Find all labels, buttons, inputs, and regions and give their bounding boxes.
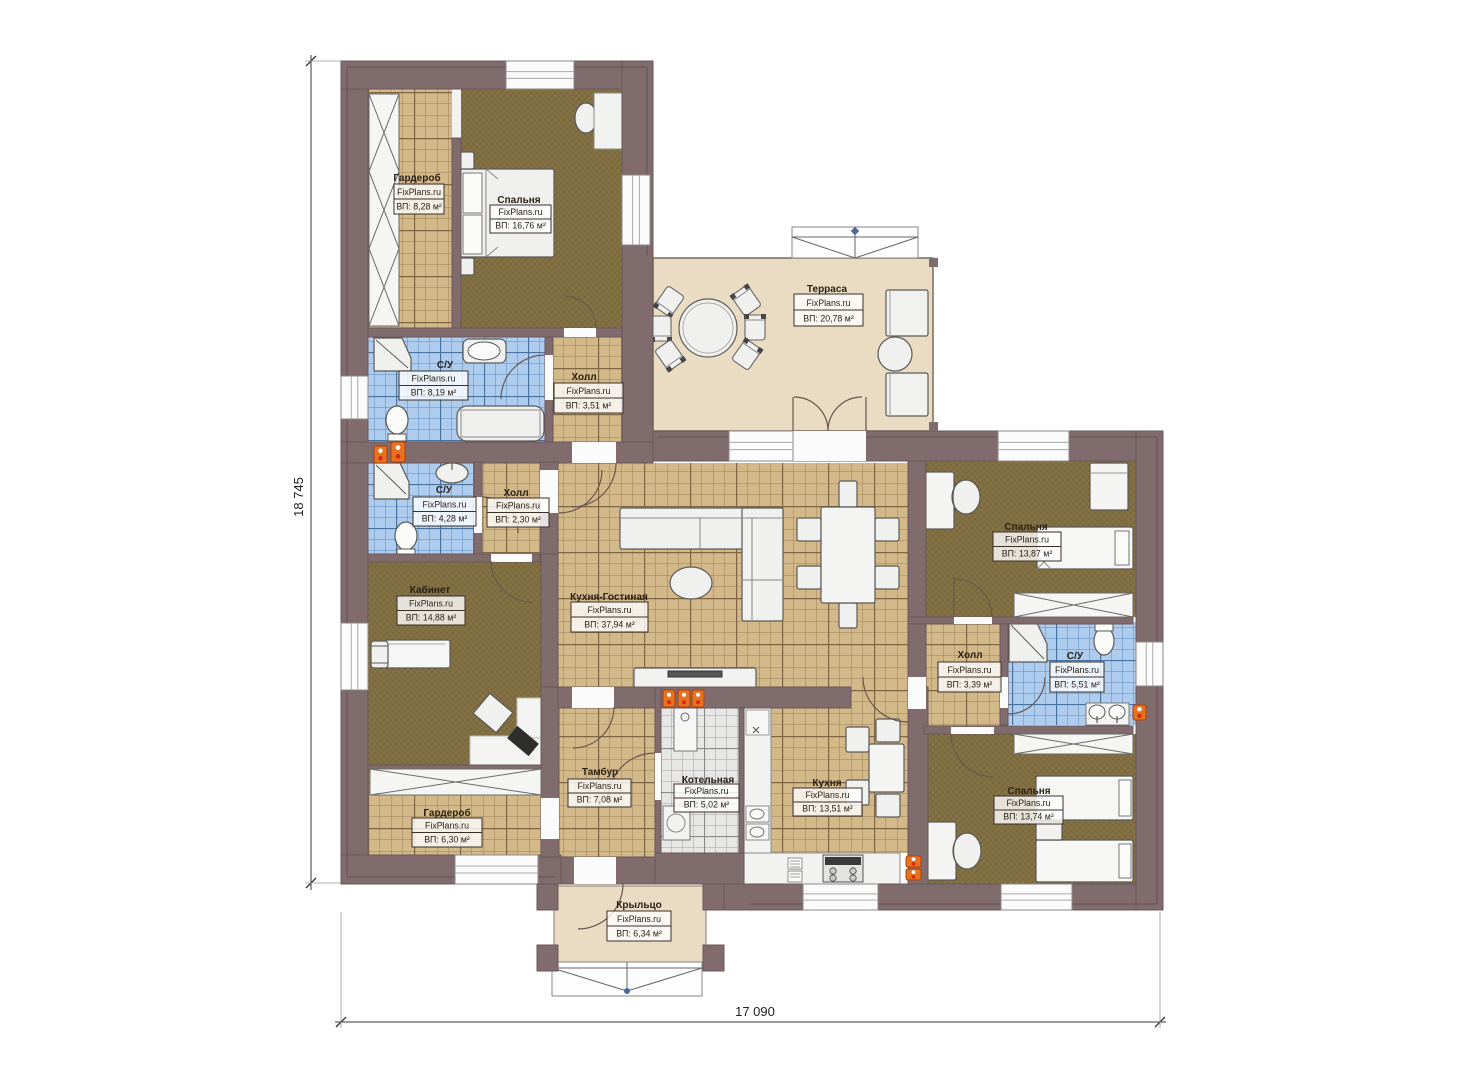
svg-text:FixPlans.ru: FixPlans.ru [567,386,611,396]
svg-text:FixPlans.ru: FixPlans.ru [1005,535,1049,545]
svg-text:ВП: 13,51 м²: ВП: 13,51 м² [802,804,853,814]
svg-text:FixPlans.ru: FixPlans.ru [1007,798,1051,808]
svg-text:FixPlans.ru: FixPlans.ru [499,207,543,217]
svg-text:ВП: 14,88 м²: ВП: 14,88 м² [406,613,457,623]
svg-text:ВП: 6,30 м²: ВП: 6,30 м² [424,835,470,845]
svg-text:ВП: 7,08 м²: ВП: 7,08 м² [577,795,623,805]
svg-text:ВП: 20,78 м²: ВП: 20,78 м² [803,314,854,324]
svg-text:18 745: 18 745 [291,477,306,517]
svg-text:FixPlans.ru: FixPlans.ru [425,821,469,831]
svg-text:FixPlans.ru: FixPlans.ru [617,914,661,924]
svg-text:Гардероб: Гардероб [423,807,470,819]
svg-text:FixPlans.ru: FixPlans.ru [588,605,632,615]
svg-text:Спальня: Спальня [1007,786,1050,797]
svg-text:Холл: Холл [957,650,982,661]
svg-text:ВП: 16,76 м²: ВП: 16,76 м² [495,221,546,231]
svg-text:Спальня: Спальня [1004,522,1047,533]
svg-text:ВП: 3,39 м²: ВП: 3,39 м² [947,680,993,690]
svg-text:С/У: С/У [436,485,453,496]
svg-text:FixPlans.ru: FixPlans.ru [409,599,453,609]
svg-text:17 090: 17 090 [735,1004,775,1019]
svg-text:ВП: 13,87 м²: ВП: 13,87 м² [1002,549,1053,559]
svg-text:ВП: 3,51 м²: ВП: 3,51 м² [566,401,612,411]
svg-text:Тамбур: Тамбур [582,766,618,778]
svg-text:ВП: 37,94 м²: ВП: 37,94 м² [584,620,635,630]
svg-text:ВП: 8,19 м²: ВП: 8,19 м² [411,388,457,398]
svg-text:ВП: 6,34 м²: ВП: 6,34 м² [616,929,662,939]
svg-text:С/У: С/У [1067,651,1084,662]
svg-text:FixPlans.ru: FixPlans.ru [685,786,729,796]
svg-text:ВП: 8,28 м²: ВП: 8,28 м² [396,202,442,212]
svg-text:FixPlans.ru: FixPlans.ru [412,374,456,384]
svg-text:FixPlans.ru: FixPlans.ru [948,665,992,675]
svg-text:FixPlans.ru: FixPlans.ru [423,500,467,510]
svg-text:FixPlans.ru: FixPlans.ru [1055,665,1099,675]
svg-text:ВП: 4,28 м²: ВП: 4,28 м² [422,514,468,524]
svg-text:FixPlans.ru: FixPlans.ru [578,781,622,791]
svg-text:FixPlans.ru: FixPlans.ru [807,298,851,308]
svg-text:Терраса: Терраса [807,284,848,295]
svg-text:ВП: 5,02 м²: ВП: 5,02 м² [684,800,730,810]
svg-text:FixPlans.ru: FixPlans.ru [397,187,441,197]
svg-text:Кухня-Гостиная: Кухня-Гостиная [570,592,648,603]
svg-text:Холл: Холл [503,488,528,499]
svg-text:Спальня: Спальня [497,195,540,206]
svg-text:ВП: 5,51 м²: ВП: 5,51 м² [1054,680,1100,690]
svg-text:Кухня: Кухня [812,778,841,789]
svg-text:Крыльцо: Крыльцо [616,900,662,911]
svg-text:ВП: 2,30 м²: ВП: 2,30 м² [495,515,541,525]
svg-text:С/У: С/У [437,360,454,371]
svg-text:Гардероб: Гардероб [393,172,440,184]
svg-text:Холл: Холл [571,372,596,383]
svg-text:FixPlans.ru: FixPlans.ru [496,501,540,511]
svg-text:Кабинет: Кабинет [410,584,451,596]
svg-text:ВП: 13,74 м²: ВП: 13,74 м² [1003,812,1054,822]
svg-text:FixPlans.ru: FixPlans.ru [806,790,850,800]
